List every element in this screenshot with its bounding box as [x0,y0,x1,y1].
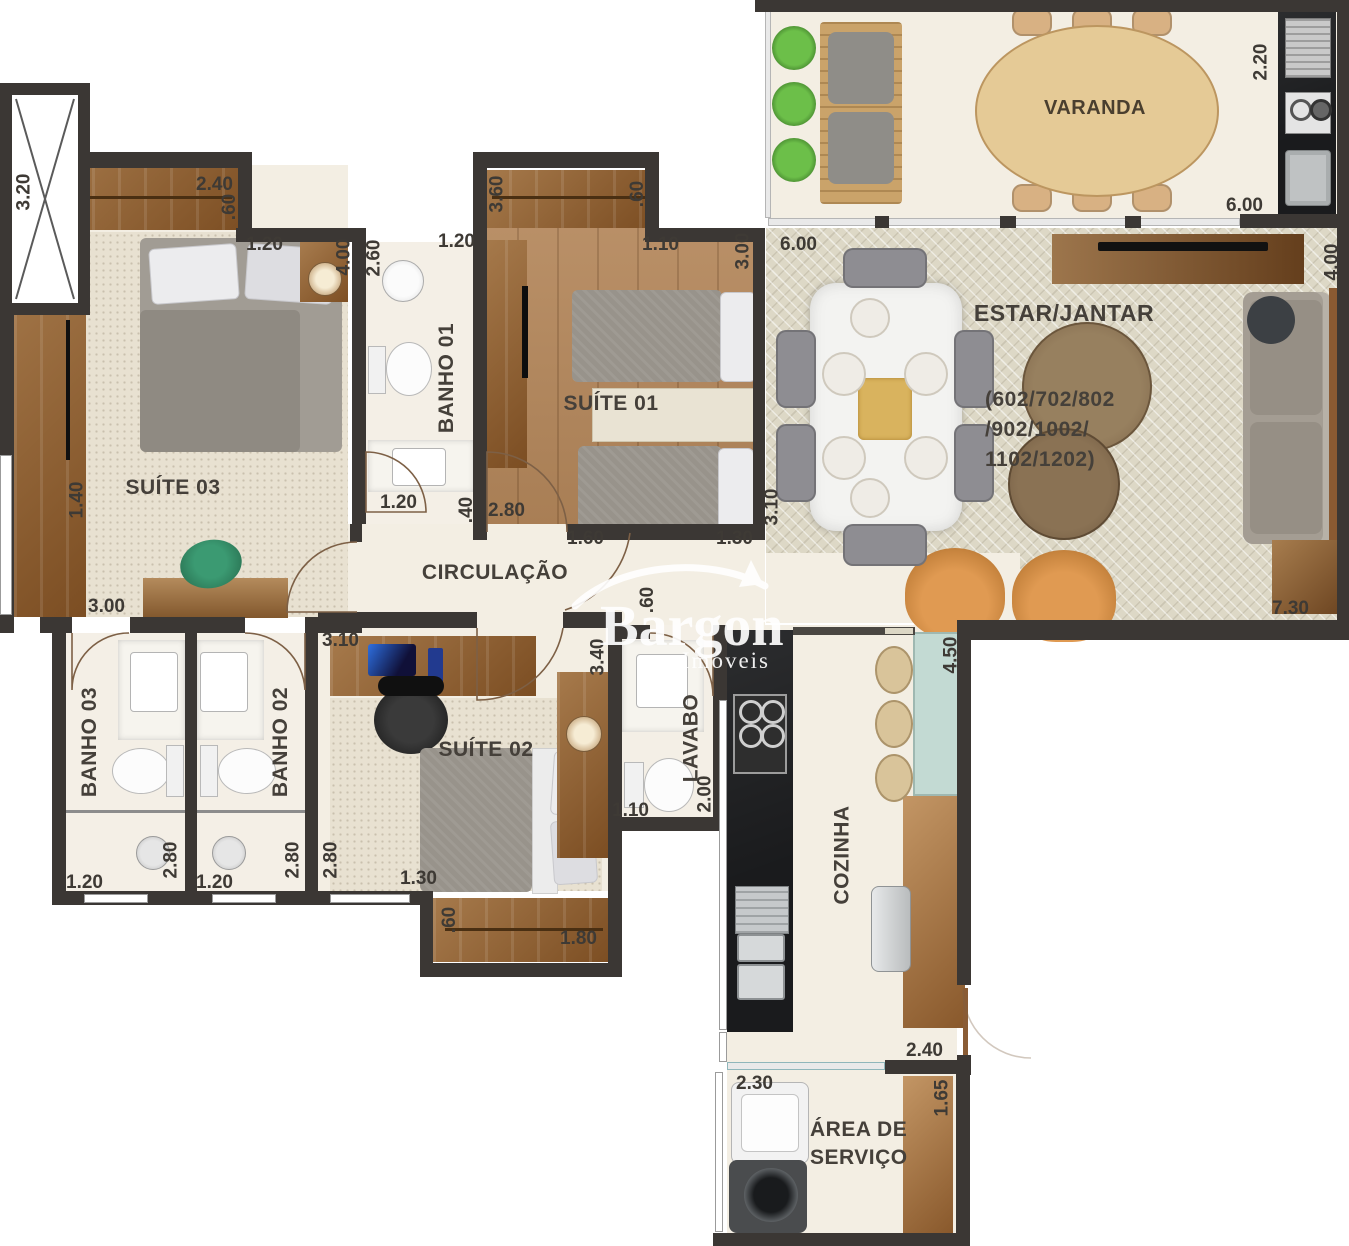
dimension-label: 2.60 [362,228,386,288]
dimension-label: 6.00 [1226,195,1263,217]
dimension-label: 3.60 [485,164,509,224]
servico-window [727,1062,885,1070]
sofa-wood-arm [1329,288,1337,550]
dimension-label: 1.40 [65,470,89,530]
bed-pillow [718,448,754,534]
plate [850,298,890,338]
closet-rod [492,196,646,199]
laptop-icon [368,644,416,676]
wall [957,633,971,985]
toilet-tank [166,745,184,797]
dimension-label: 1.20 [246,234,283,256]
plant-pot [772,26,816,70]
sink-icon [130,652,178,712]
dimension-label: 3.10 [760,477,784,537]
sliding-door-tick [875,216,889,228]
kitchen-sink-icon [735,886,789,934]
dimension-label: 1.20 [196,872,233,894]
bed-pillow [720,292,756,382]
dimension-label: 4.50 [939,625,963,685]
dimension-label: 1.10 [612,800,649,822]
dimension-label: .60 [626,164,650,224]
plate [904,436,948,480]
suite-02-headboard-closet [557,672,608,858]
toilet-tank [200,745,218,797]
room-label-suite-03: SUÍTE 03 [120,476,226,500]
wall [305,625,318,905]
office-chair-back [378,676,444,696]
burner [739,700,763,724]
refrigerator-icon [871,886,911,972]
tv-icon [522,286,528,378]
room-label-estar: ESTAR/JANTAR [973,300,1155,327]
bar-stool [875,754,913,802]
sliding-door-tick [1000,216,1016,228]
kitchen-sink-basin [737,934,785,962]
room-label-banho-03: BANHO 03 [77,677,103,807]
closet-handle [66,320,70,460]
plate [822,436,866,480]
room-label-suite-01: SUÍTE 01 [558,392,664,416]
table-runner [858,378,912,440]
burner [739,724,763,748]
dimension-label: .60 [438,897,462,943]
toilet-tank [368,346,386,394]
dimension-label: 3.20 [12,162,36,222]
window [330,894,410,903]
wall [1337,0,1349,640]
dimension-label: 2.80 [488,500,525,522]
bar-stool [875,646,913,694]
dimension-label: 1.20 [66,872,103,894]
dimension-label: 2.30 [736,1073,773,1095]
window [719,700,727,1030]
burner [1310,99,1332,121]
island-counter-wood [903,796,965,1028]
dimension-label: .60 [218,182,242,232]
wall [318,612,477,628]
bed-pillow [148,243,240,305]
bed-blanket [140,310,300,452]
wall [957,620,1349,640]
burner [1290,99,1312,121]
plate [822,352,866,396]
dining-chair [776,330,816,408]
sofa-cushion [1250,422,1322,534]
entry-door-leaf [963,988,968,1058]
window [0,455,12,615]
dimension-label: 2.80 [281,830,305,890]
window [212,894,276,903]
room-label-lavabo: LAVABO [678,682,704,794]
dimension-label: 1.60 [567,528,604,550]
shower-glass [66,810,185,813]
room-label-cozinha: COZINHA [830,790,856,920]
wall [755,0,1349,12]
plant-pot [772,82,816,126]
dimension-label: 1.30 [716,528,753,550]
wall [40,617,72,633]
sliding-door-tick [1125,216,1141,228]
coffee-table [1008,428,1120,540]
sink-icon [392,448,446,486]
kitchen-sink-basin [737,964,785,1000]
toilet-icon [112,748,170,794]
room-label-banho-02: BANHO 02 [268,677,294,807]
grill-icon [1285,18,1331,78]
toilet-icon [386,342,432,396]
room-label-servico-line2: SERVIÇO [810,1146,908,1170]
plate [850,478,890,518]
varanda-sink-icon [1285,150,1331,206]
window [719,1032,727,1062]
wall [956,1060,970,1246]
single-bed [578,446,722,534]
wall [608,831,622,977]
room-label-circulacao: CIRCULAÇÃO [417,561,573,585]
bench-cushion [828,32,894,104]
wall [130,617,245,633]
room-label-banho-01: BANHO 01 [434,313,460,443]
dimension-label: 1.10 [642,234,679,256]
estar-units-line2: /902/1002/ [985,418,1089,442]
dimension-label: 3.00 [88,596,125,618]
wall [420,963,622,977]
dining-chair [843,524,927,566]
dimension-label: 1.20 [380,492,417,514]
dimension-label: .40 [455,487,479,533]
varanda-railing [765,8,771,218]
dimension-label: 1.65 [930,1070,954,1126]
dining-chair [843,248,927,288]
dimension-label: 6.00 [780,234,817,256]
shower-glass [197,810,305,813]
dimension-label: 2.80 [159,830,183,890]
room-label-varanda: VARANDA [1030,97,1160,120]
table-lamp-icon [566,716,602,752]
round-side-table [1247,296,1295,344]
wall [350,524,362,542]
floor-plan: 3.20 2.40 .60 1.20 4.00 2.60 1.20 3.60 .… [0,0,1349,1246]
dimension-label: 7.30 [1272,598,1309,620]
wall [52,633,66,905]
shower-head-icon [212,836,246,870]
dimension-label: 1.80 [560,928,597,950]
sink-icon [200,652,248,712]
tv-icon [1098,242,1268,251]
washbasin-icon [382,260,424,302]
dimension-label: 4.00 [332,227,356,287]
dimension-label: 2.20 [1249,32,1273,92]
dimension-label: 3.00 [731,221,755,281]
laundry-sink-basin [741,1094,799,1152]
dimension-label: 3.10 [322,630,359,652]
washer-door [744,1168,798,1222]
wall [185,633,197,891]
dimension-label: 1.30 [400,868,437,890]
dimension-label: 2.80 [319,830,343,890]
bar-stool [875,700,913,748]
burner [761,700,785,724]
window [84,894,148,903]
estar-units-line3: 1102/1202) [985,448,1095,472]
pass-through [885,628,913,634]
room-label-suite-02: SUÍTE 02 [433,738,539,762]
wall [713,1233,970,1246]
dimension-label: 1.20 [438,231,475,253]
dimension-label: 4.00 [1320,232,1344,292]
burner [761,724,785,748]
watermark-tagline: Imóveis [660,648,770,674]
plant-pot [772,138,816,182]
bench-cushion [828,112,894,184]
plate [904,352,948,396]
single-bed [572,290,722,382]
room-label-servico-line1: ÁREA DE [810,1118,907,1142]
dimension-label: 2.40 [906,1040,943,1062]
window [715,1072,723,1232]
estar-units-line1: (602/702/802 [985,388,1115,412]
